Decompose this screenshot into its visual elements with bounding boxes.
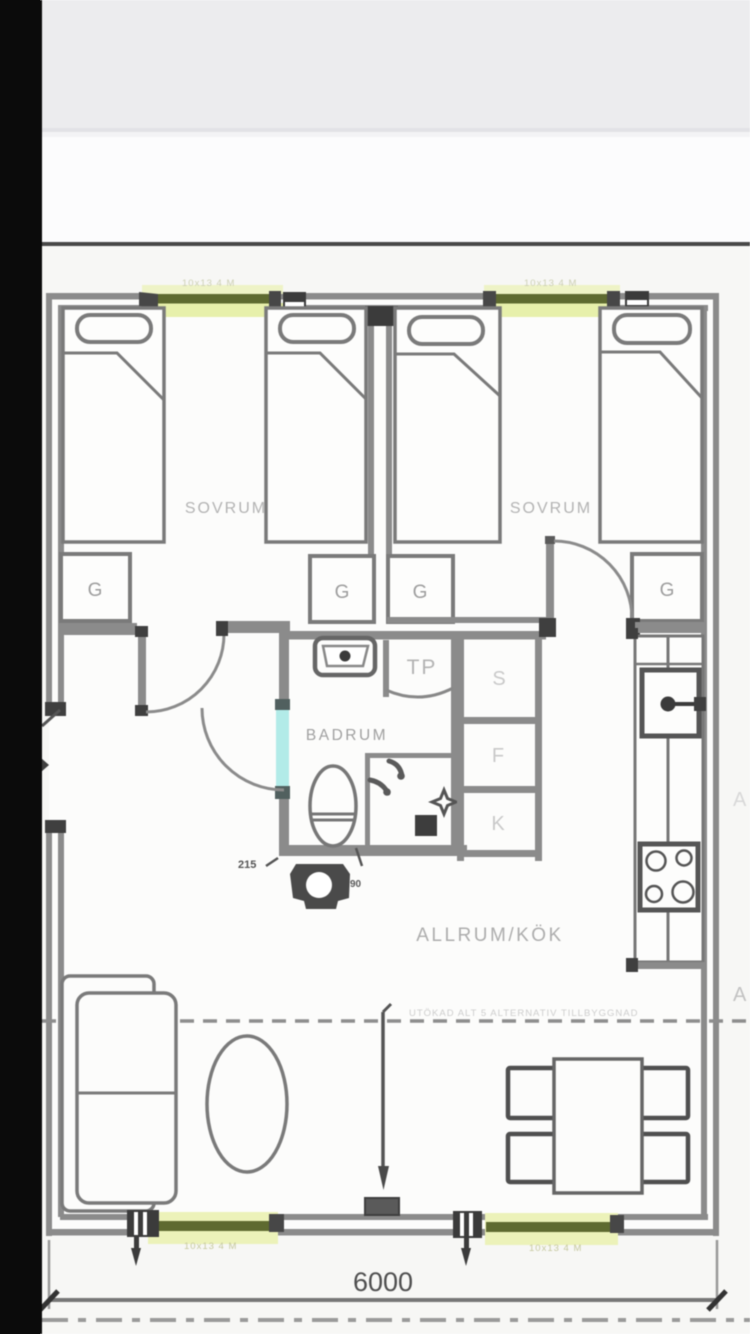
svg-text:10x13 4 M: 10x13 4 M: [529, 1243, 582, 1254]
svg-text:6000: 6000: [353, 1267, 413, 1297]
svg-text:S: S: [492, 668, 505, 690]
svg-text:10x13 4 M: 10x13 4 M: [182, 278, 235, 289]
svg-text:K: K: [491, 813, 505, 835]
svg-text:10x13 4 M: 10x13 4 M: [184, 1241, 237, 1252]
svg-text:G: G: [660, 580, 675, 601]
svg-text:TP: TP: [407, 656, 438, 679]
svg-text:SOVRUM: SOVRUM: [185, 500, 267, 517]
svg-text:G: G: [413, 582, 428, 603]
svg-text:SOVRUM: SOVRUM: [510, 500, 592, 517]
svg-text:G: G: [88, 580, 103, 601]
svg-text:A: A: [733, 789, 747, 811]
svg-text:A: A: [733, 984, 747, 1006]
svg-text:G: G: [335, 582, 350, 603]
svg-text:ALLRUM/KÖK: ALLRUM/KÖK: [416, 925, 563, 946]
svg-text:BADRUM: BADRUM: [306, 727, 388, 744]
svg-text:10x13 4 M: 10x13 4 M: [524, 278, 577, 289]
svg-text:90: 90: [350, 879, 362, 890]
svg-text:215: 215: [238, 859, 256, 871]
svg-text:UTÖKAD ALT 5 ALTERNATIV TILLBY: UTÖKAD ALT 5 ALTERNATIV TILLBYGGNAD: [409, 1008, 638, 1019]
svg-text:F: F: [492, 745, 504, 767]
